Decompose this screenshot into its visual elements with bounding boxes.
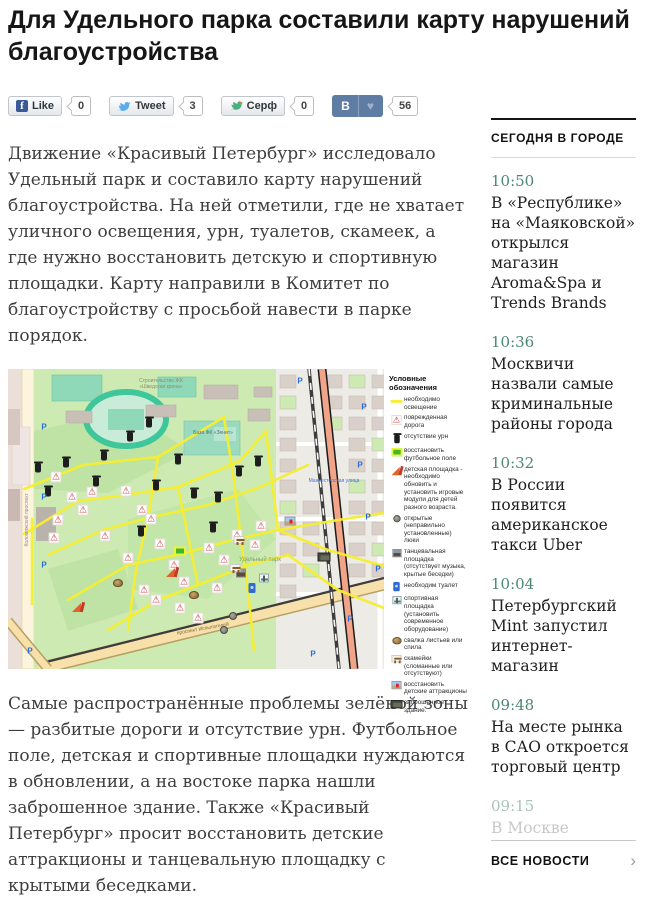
map-marker-urn (101, 452, 107, 461)
news-timestamp: 10:50 (491, 172, 636, 190)
map-marker-bench (234, 536, 245, 544)
legend-item: восстановить футбольное поле (389, 447, 467, 462)
map-marker-road (123, 553, 134, 564)
parking-icon: P (41, 493, 46, 502)
parking-icon: P (297, 377, 302, 386)
legend-label: свалка листьев или спила (404, 637, 467, 652)
map-marker-road (100, 531, 111, 542)
legend-item: танцевальная площадка (отсутствует музык… (389, 548, 467, 578)
map-marker-road (121, 486, 132, 497)
map-marker-urn (175, 456, 181, 465)
news-timestamp: 10:32 (491, 454, 636, 472)
parking-icon: P (27, 647, 32, 656)
map-marker-leaves (113, 579, 123, 587)
map-marker-road (204, 543, 215, 554)
news-item[interactable]: 10:04Петербургский Mint запустил интерне… (491, 575, 636, 676)
map-marker-urn (210, 524, 216, 533)
legend-label: необходимо освещение (404, 396, 467, 411)
map-marker-urn (215, 494, 221, 503)
sidebar-divider (491, 157, 636, 158)
map-marker-playground (72, 602, 84, 612)
map-legend-title: Условные обозначения (389, 374, 467, 392)
share-row: f Like 0 Tweet 3 Серф 0 (8, 95, 636, 117)
map-marker-football (174, 547, 186, 556)
map-marker-urn (153, 482, 159, 491)
tweet-count: 3 (183, 96, 203, 116)
map-marker-bench (230, 564, 241, 572)
vk-divider (358, 95, 359, 117)
vk-widget: В 56 (332, 95, 418, 117)
sidebar-heading: СЕГОДНЯ В ГОРОДЕ (491, 131, 636, 145)
legend-label: отсутствие урн (404, 433, 448, 441)
map-marker-road (256, 521, 267, 532)
dance-icon (389, 549, 404, 558)
news-title-link[interactable]: В Москве (491, 818, 636, 838)
road-icon (389, 415, 404, 426)
map-marker-urn (146, 419, 152, 428)
light-icon (389, 397, 404, 403)
city-news-list: 10:50В «Республике» на «Маяковской» откр… (491, 172, 636, 838)
tweet-widget: Tweet 3 (109, 96, 202, 116)
map-street-label: Удельный парк (234, 557, 286, 564)
surfingbird-count: 0 (294, 96, 314, 116)
legend-item: отсутствие урн (389, 433, 467, 445)
legend-item: скамейки (сломанные или отсутствуют) (389, 655, 467, 678)
tweet-label: Tweet (135, 100, 165, 112)
manhole-icon (389, 515, 404, 523)
map-marker-urn (191, 490, 197, 499)
legend-item: детская площадка - необходимо обновить и… (389, 466, 467, 512)
chevron-right-icon (630, 855, 636, 867)
legend-item: заброшенное здание. (389, 699, 467, 714)
map-marker-road (51, 472, 62, 483)
parking-icon: P (41, 561, 46, 570)
football-icon (389, 448, 404, 457)
facebook-like-label: Like (32, 100, 54, 112)
map-marker-road (179, 577, 190, 588)
parking-icon: P (361, 403, 366, 412)
map-street-label: Коломяжский проспект (25, 470, 31, 570)
news-title-link[interactable]: Петербургский Mint запустил интернет-маг… (491, 596, 636, 676)
map-marker-playground (166, 567, 178, 577)
news-timestamp: 10:36 (491, 333, 636, 351)
legend-item: поврежденная дорога (389, 414, 467, 429)
page-title: Для Удельного парка составили карту нару… (8, 4, 638, 68)
surfingbird-label: Серф (247, 100, 277, 112)
surfingbird-button[interactable]: Серф (221, 96, 285, 116)
news-title-link[interactable]: В «Республике» на «Маяковской» открылся … (491, 193, 636, 313)
map-street-label: Строительство ЖК «Шведская крона» (126, 379, 196, 391)
parking-icon: P (310, 650, 315, 659)
article-column: Движение «Красивый Петербург» исследовал… (8, 117, 470, 899)
facebook-like-widget: f Like 0 (8, 96, 91, 116)
facebook-icon: f (16, 100, 28, 112)
vk-like-button[interactable]: В (332, 95, 383, 117)
map-canvas: Строительство ЖК «Шведская крона»База ФК… (8, 369, 384, 669)
map-marker-road (139, 585, 150, 596)
news-timestamp: 09:15 (491, 797, 636, 815)
news-item[interactable]: 10:36Москвичи назвали самые криминальные… (491, 333, 636, 434)
article-paragraph-2: Самые распространённые проблемы зелёной … (8, 691, 470, 899)
legend-item: восстановить детские аттракционы (389, 681, 467, 696)
map-marker-road (67, 492, 78, 503)
map-legend-items: необходимо освещениеповрежденная дорогао… (389, 396, 467, 714)
map-marker-road (155, 539, 166, 550)
tweet-button[interactable]: Tweet (109, 96, 173, 116)
heart-icon (367, 100, 374, 112)
parking-icon: P (375, 565, 380, 574)
vk-like-count: 56 (392, 96, 418, 116)
sidebar: СЕГОДНЯ В ГОРОДЕ 10:50В «Республике» на … (491, 117, 636, 899)
attraction-icon (389, 681, 404, 690)
all-news-label: ВСЕ НОВОСТИ (491, 854, 590, 868)
playground-icon (389, 466, 404, 476)
legend-label: поврежденная дорога (404, 414, 467, 429)
facebook-like-count: 0 (71, 96, 91, 116)
violations-map-image[interactable]: Строительство ЖК «Шведская крона»База ФК… (8, 369, 470, 669)
legend-label: танцевальная площадка (отсутствует музык… (404, 548, 467, 578)
parking-icon: P (347, 615, 352, 624)
legend-item: необходимо освещение (389, 396, 467, 411)
parking-icon: P (365, 513, 370, 522)
legend-label: заброшенное здание. (404, 699, 467, 714)
news-title-link[interactable]: На месте рынка в САО откроется торговый … (491, 717, 636, 777)
map-marker-road (151, 595, 162, 606)
map-marker-road (78, 505, 89, 516)
parking-icon: P (41, 423, 46, 432)
news-title-link[interactable]: В России появится американское такси Ube… (491, 475, 636, 555)
news-item[interactable]: 09:15В Москве (491, 797, 636, 838)
map-marker-leaves (189, 591, 199, 599)
map-marker-sport (259, 574, 269, 583)
legend-label: открытые (неправильно установленные) люк… (404, 515, 467, 545)
map-marker-road (175, 603, 186, 614)
news-item[interactable]: 10:50В «Республике» на «Маяковской» откр… (491, 172, 636, 313)
legend-item: открытые (неправильно установленные) люк… (389, 515, 467, 545)
news-title-link[interactable]: Москвичи назвали самые криминальные райо… (491, 354, 636, 434)
legend-label: необходим туалет (404, 582, 458, 590)
twitter-bird-icon (117, 101, 131, 112)
map-marker-urn (63, 459, 69, 468)
surfingbird-widget: Серф 0 (221, 96, 315, 116)
bench-icon (389, 655, 404, 663)
map-marker-manhole (229, 612, 237, 620)
map-legend: Условные обозначения необходимо освещени… (384, 369, 470, 669)
news-item[interactable]: 09:48На месте рынка в САО откроется торг… (491, 696, 636, 777)
sport-icon (389, 596, 404, 605)
abandoned-icon (389, 700, 404, 709)
toilet-icon (389, 582, 404, 592)
legend-label: детская площадка - необходимо обновить и… (404, 466, 467, 512)
map-marker-road (250, 540, 261, 551)
map-marker-road (53, 515, 64, 526)
map-marker-road (219, 555, 230, 566)
map-marker-urn (127, 433, 133, 442)
legend-label: восстановить детские аттракционы (404, 681, 467, 696)
map-marker-urn (35, 464, 41, 473)
map-marker-toilet (249, 583, 256, 593)
map-marker-road (87, 487, 98, 498)
legend-item: необходим туалет (389, 582, 467, 593)
map-street-label: База ФК «Зенит» (188, 431, 238, 437)
map-marker-road (212, 583, 223, 594)
map-marker-road (146, 514, 157, 525)
news-item[interactable]: 10:32В России появится американское такс… (491, 454, 636, 555)
map-marker-urn (138, 528, 144, 537)
urn-icon (389, 433, 404, 444)
surfingbird-icon (229, 101, 243, 112)
map-marker-urn (236, 468, 242, 477)
legend-item: спортивная площадка (установить современ… (389, 595, 467, 633)
map-marker-road (193, 613, 204, 624)
legend-label: восстановить футбольное поле (404, 447, 467, 462)
parking-icon: P (357, 461, 362, 470)
leaves-icon (389, 637, 404, 645)
page: Для Удельного парка составили карту нару… (0, 0, 652, 899)
map-marker-abandoned (318, 553, 331, 562)
news-timestamp: 10:04 (491, 575, 636, 593)
map-marker-urn (93, 478, 99, 487)
vk-logo: В (341, 99, 350, 113)
facebook-like-button[interactable]: f Like (8, 96, 62, 116)
map-marker-road (49, 533, 60, 544)
map-street-label: Манчестерская улица (292, 479, 376, 485)
legend-label: скамейки (сломанные или отсутствуют) (404, 655, 467, 678)
all-news-link[interactable]: ВСЕ НОВОСТИ (491, 840, 636, 868)
news-timestamp: 09:48 (491, 696, 636, 714)
map-marker-attraction (285, 517, 296, 526)
legend-label: спортивная площадка (установить современ… (404, 595, 467, 633)
map-marker-urn (255, 458, 261, 467)
legend-item: свалка листьев или спила (389, 637, 467, 652)
article-paragraph-1: Движение «Красивый Петербург» исследовал… (8, 141, 470, 349)
